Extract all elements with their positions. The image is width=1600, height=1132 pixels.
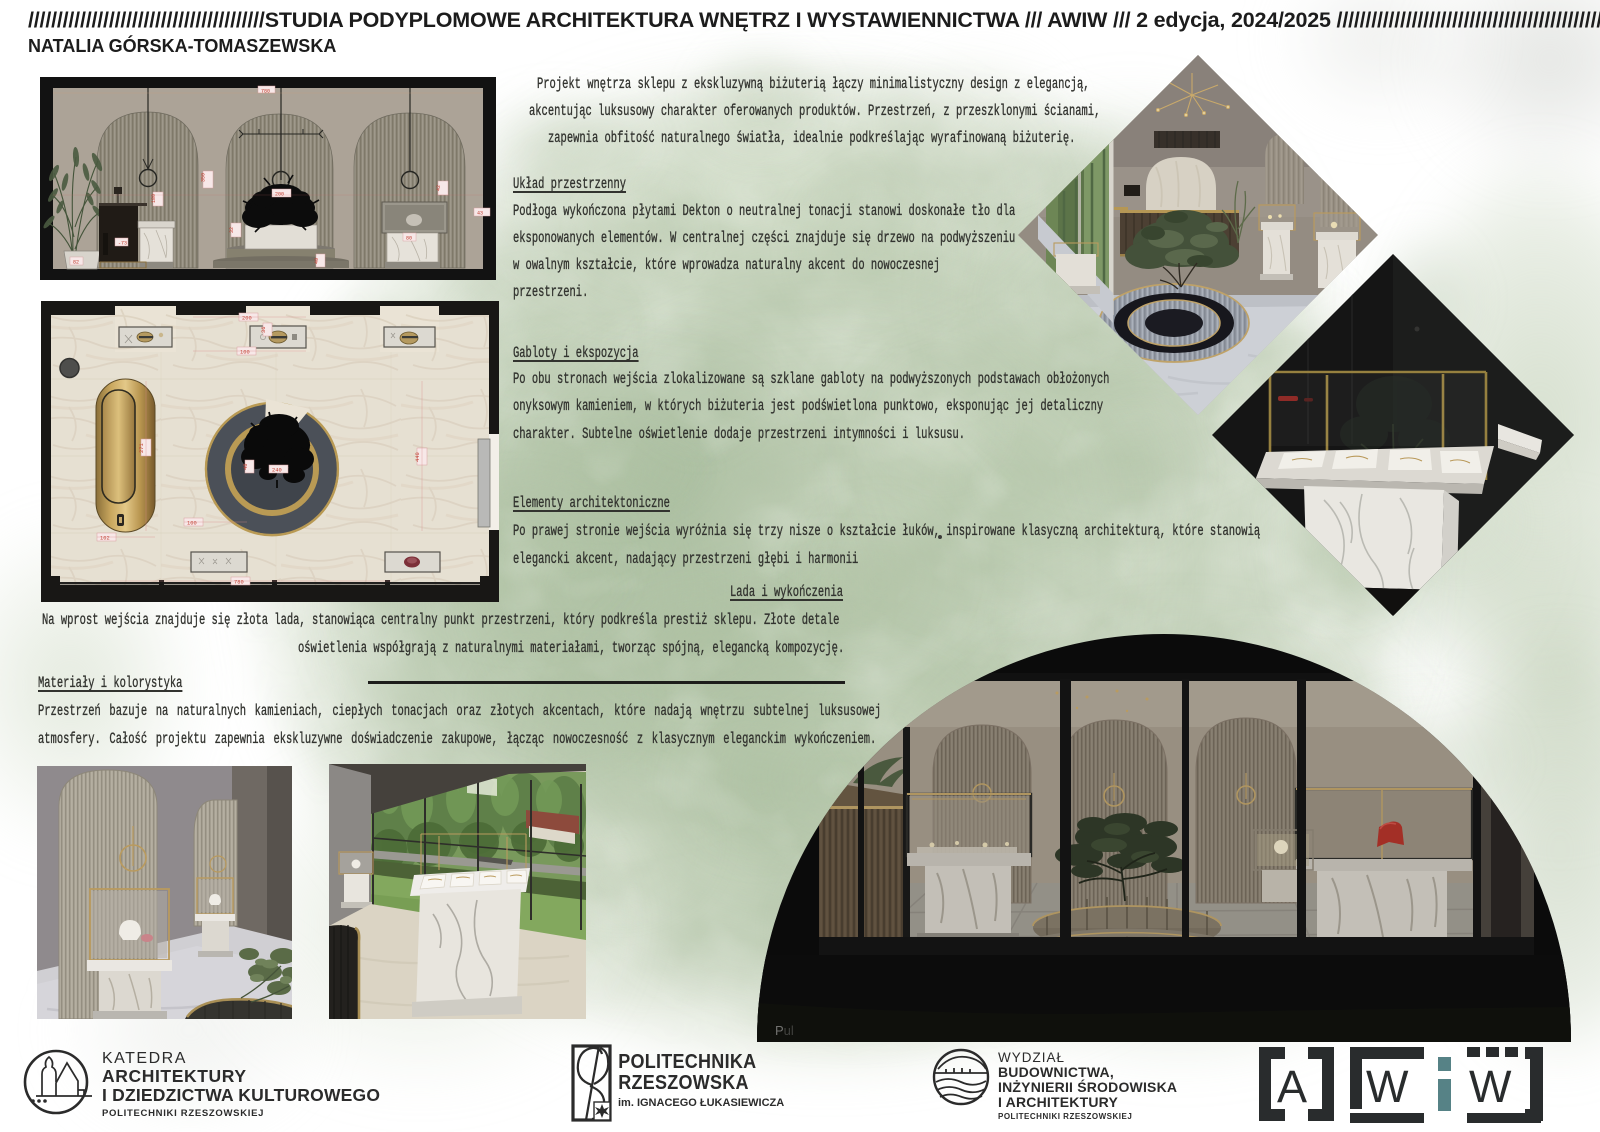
svg-text:BUDOWNICTWA,: BUDOWNICTWA, — [998, 1064, 1114, 1080]
svg-text:POLITECHNIKI RZESZOWSKIEJ: POLITECHNIKI RZESZOWSKIEJ — [102, 1108, 264, 1119]
svg-text:43: 43 — [477, 211, 483, 217]
svg-text:32: 32 — [229, 227, 235, 233]
svg-text:POLITECHNIKI RZESZOWSKIEJ: POLITECHNIKI RZESZOWSKIEJ — [998, 1112, 1132, 1121]
svg-text:100: 100 — [240, 350, 250, 356]
svg-text:40: 40 — [314, 258, 320, 264]
svg-text:100: 100 — [187, 521, 197, 527]
svg-text:KATEDRA: KATEDRA — [102, 1050, 187, 1067]
svg-text:440: 440 — [415, 452, 421, 462]
svg-text:POLITECHNIKA: POLITECHNIKA — [618, 1051, 756, 1073]
svg-text:INŻYNIERII ŚRODOWISKA: INŻYNIERII ŚRODOWISKA — [998, 1078, 1177, 1095]
svg-text:780: 780 — [261, 89, 270, 95]
svg-text:240: 240 — [272, 468, 282, 474]
svg-text:A: A — [1277, 1061, 1307, 1112]
svg-text:271: 271 — [139, 443, 145, 453]
svg-text:W: W — [1366, 1061, 1409, 1112]
svg-text:ARCHITEKTURY: ARCHITEKTURY — [102, 1066, 247, 1086]
svg-text:180: 180 — [151, 194, 157, 203]
svg-text:80: 80 — [406, 236, 412, 242]
svg-text:36: 36 — [261, 327, 267, 333]
svg-text:42: 42 — [436, 185, 442, 191]
svg-text:im. IGNACEGO ŁUKASIEWICZA: im. IGNACEGO ŁUKASIEWICZA — [618, 1097, 784, 1109]
svg-text:200: 200 — [275, 192, 284, 198]
svg-text:40: 40 — [243, 464, 249, 470]
svg-text:780: 780 — [234, 580, 244, 586]
svg-text:W: W — [1469, 1061, 1512, 1112]
svg-text:I DZIEDZICTWA KULTUROWEGO: I DZIEDZICTWA KULTUROWEGO — [102, 1085, 380, 1105]
svg-text:350: 350 — [201, 173, 207, 182]
svg-text:WYDZIAŁ: WYDZIAŁ — [998, 1050, 1065, 1065]
svg-text:I ARCHITEKTURY: I ARCHITEKTURY — [998, 1094, 1118, 1110]
svg-text:RZESZOWSKA: RZESZOWSKA — [618, 1072, 749, 1094]
svg-text:200: 200 — [242, 316, 252, 322]
svg-text:-73: -73 — [118, 241, 127, 247]
svg-text:82: 82 — [73, 260, 79, 266]
svg-text:102: 102 — [100, 536, 110, 542]
